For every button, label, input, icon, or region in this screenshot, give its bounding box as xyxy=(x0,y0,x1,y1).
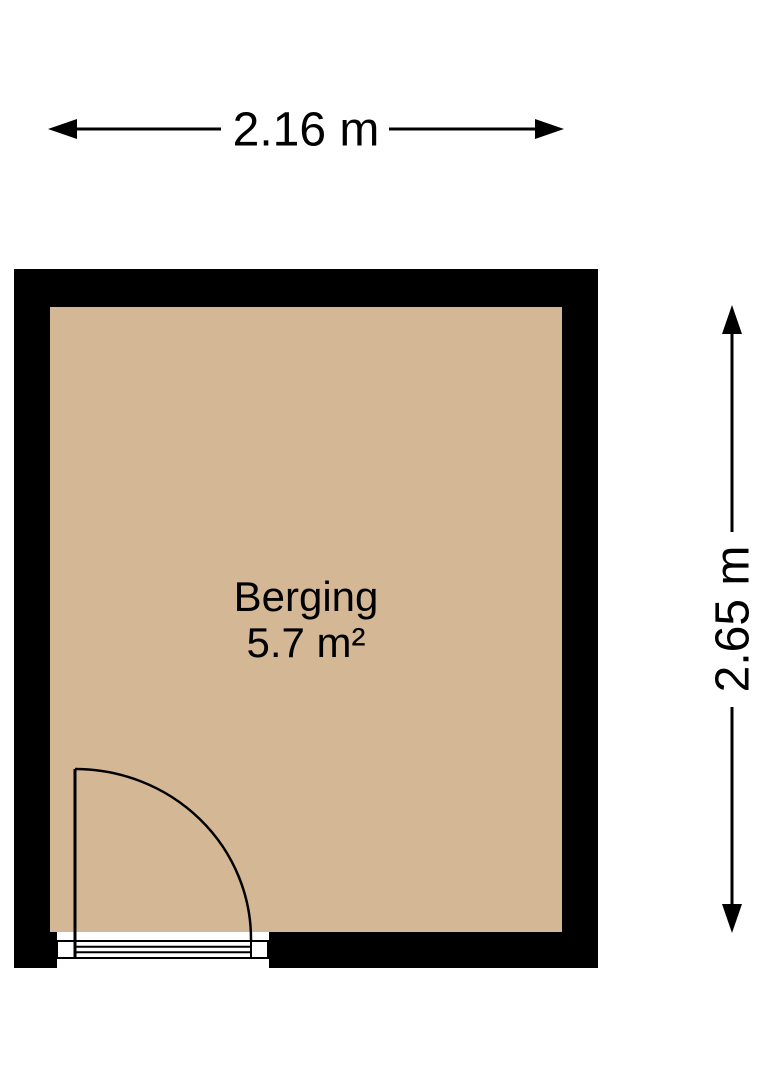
width-dimension-label: 2.16 m xyxy=(233,103,380,156)
arrowhead-right-icon xyxy=(535,119,564,139)
height-dimension-label: 2.65 m xyxy=(706,546,759,693)
room-area-label: 5.7 m² xyxy=(246,619,365,666)
arrowhead-up-icon xyxy=(722,305,742,334)
door-threshold-box xyxy=(57,941,268,958)
arrowhead-down-icon xyxy=(722,904,742,933)
room-name-label: Berging xyxy=(234,573,379,620)
floorplan-canvas: 2.16 m 2.65 m xyxy=(0,0,764,1080)
room-berging: Berging 5.7 m² xyxy=(14,269,598,968)
door-threshold xyxy=(57,941,268,958)
height-dimension: 2.65 m xyxy=(706,305,759,933)
floorplan-drawing: 2.16 m 2.65 m xyxy=(0,0,764,1080)
width-dimension: 2.16 m xyxy=(48,103,564,156)
arrowhead-left-icon xyxy=(48,119,77,139)
